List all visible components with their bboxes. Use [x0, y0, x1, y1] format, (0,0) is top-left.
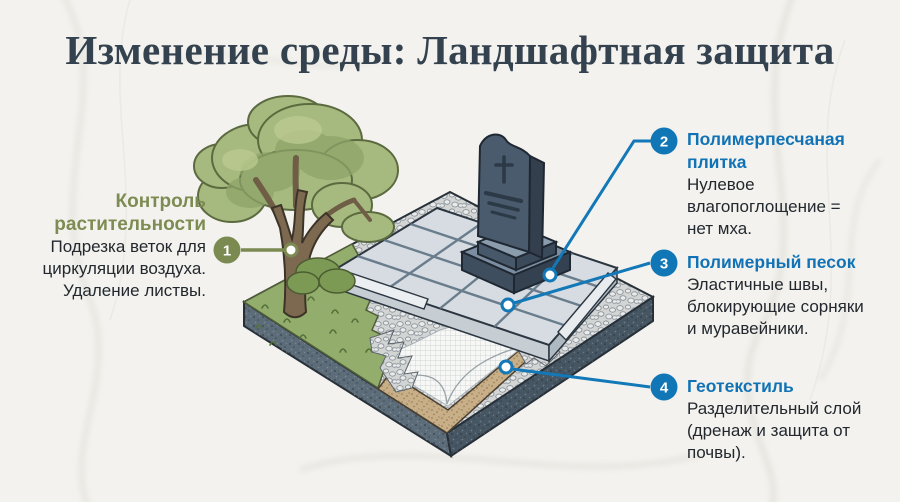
- infographic-landscape-protection: { "title": "Изменение среды: Ландшафтная…: [0, 0, 900, 502]
- callout-2-heading: Полимерпесчаная плитка: [687, 128, 892, 174]
- callout-4-body: Разделительный слой (дренаж и защита от …: [687, 398, 892, 464]
- stele-side: [529, 156, 544, 258]
- callout-1-body: Подрезка веток для циркуляции воздуха. У…: [0, 236, 206, 302]
- callout-polymer-sand: Полимерный песок Эластичные швы, блокиру…: [687, 251, 892, 340]
- anchor-dot-1: [285, 244, 297, 256]
- svg-text:3: 3: [660, 256, 668, 273]
- callout-1-heading: Контроль растительности: [0, 190, 206, 236]
- callout-4-heading: Геотекстиль: [687, 375, 892, 398]
- connector-1: [241, 244, 297, 256]
- marker-4: 4: [651, 374, 678, 401]
- marker-1: 1: [214, 237, 241, 264]
- callout-vegetation-control: Контроль растительности Подрезка веток д…: [0, 190, 206, 302]
- marker-3: 3: [651, 250, 678, 277]
- marker-2: 2: [651, 128, 678, 155]
- callout-geotextile: Геотекстиль Разделительный слой (дренаж …: [687, 375, 892, 464]
- anchor-dot-4: [500, 361, 512, 373]
- callout-3-heading: Полимерный песок: [687, 251, 892, 274]
- anchor-dot-2: [544, 269, 556, 281]
- callout-3-body: Эластичные швы, блокирующие сорняки и му…: [687, 274, 892, 340]
- anchor-dot-3: [502, 299, 514, 311]
- callout-polymer-sand-tile: Полимерпесчаная плитка Нулевое влагопогл…: [687, 128, 892, 240]
- svg-text:1: 1: [223, 243, 231, 260]
- svg-text:2: 2: [660, 134, 668, 151]
- svg-text:4: 4: [660, 380, 669, 397]
- callout-2-body: Нулевое влагопоглощение = нет мха.: [687, 174, 892, 240]
